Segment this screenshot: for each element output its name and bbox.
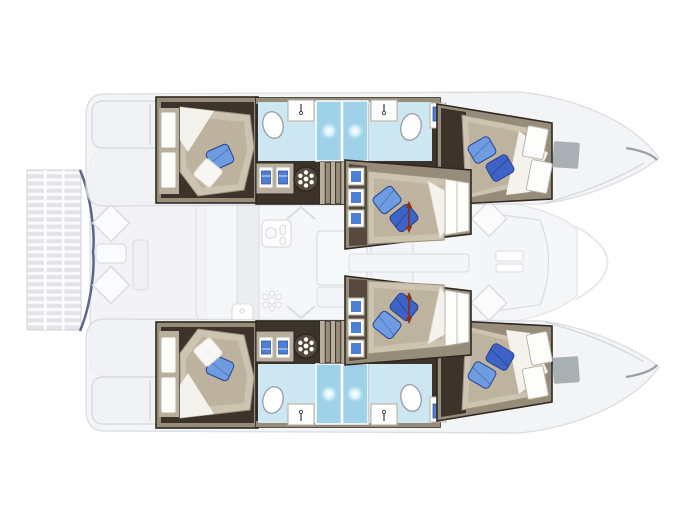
wardrobe-door	[161, 112, 176, 148]
bow-cabin	[345, 160, 471, 249]
aft-cabin	[156, 97, 258, 203]
stove-icon	[262, 220, 291, 247]
cockpit-table	[496, 251, 523, 261]
catamaran-floorplan: Catamaran yacht floor plan, top view	[0, 0, 700, 525]
hatch-wheel-icon	[294, 167, 318, 191]
bow-window-icon	[552, 141, 580, 169]
towel-shelf-icon	[259, 167, 273, 188]
davit-beam	[133, 240, 148, 290]
floorplan-canvas: Catamaran yacht floor plan, top view	[0, 0, 700, 525]
trampoline-slats-icon	[27, 170, 81, 330]
towel-shelf-icon	[276, 167, 290, 188]
slat-seam	[62, 170, 65, 330]
wardrobe-door	[161, 152, 176, 188]
sink-vanity-icon	[288, 100, 314, 121]
center-passage	[349, 254, 469, 272]
stairs-icon	[320, 162, 346, 204]
deck-locker	[96, 244, 126, 263]
shower-spotlight-icon	[345, 121, 365, 141]
cockpit-table	[496, 264, 523, 272]
slat-seam	[44, 170, 47, 330]
crossbeam-line	[575, 226, 608, 300]
shower-spotlight-icon	[319, 121, 339, 141]
sink-vanity-icon	[371, 100, 397, 121]
step-shelves	[348, 168, 364, 227]
